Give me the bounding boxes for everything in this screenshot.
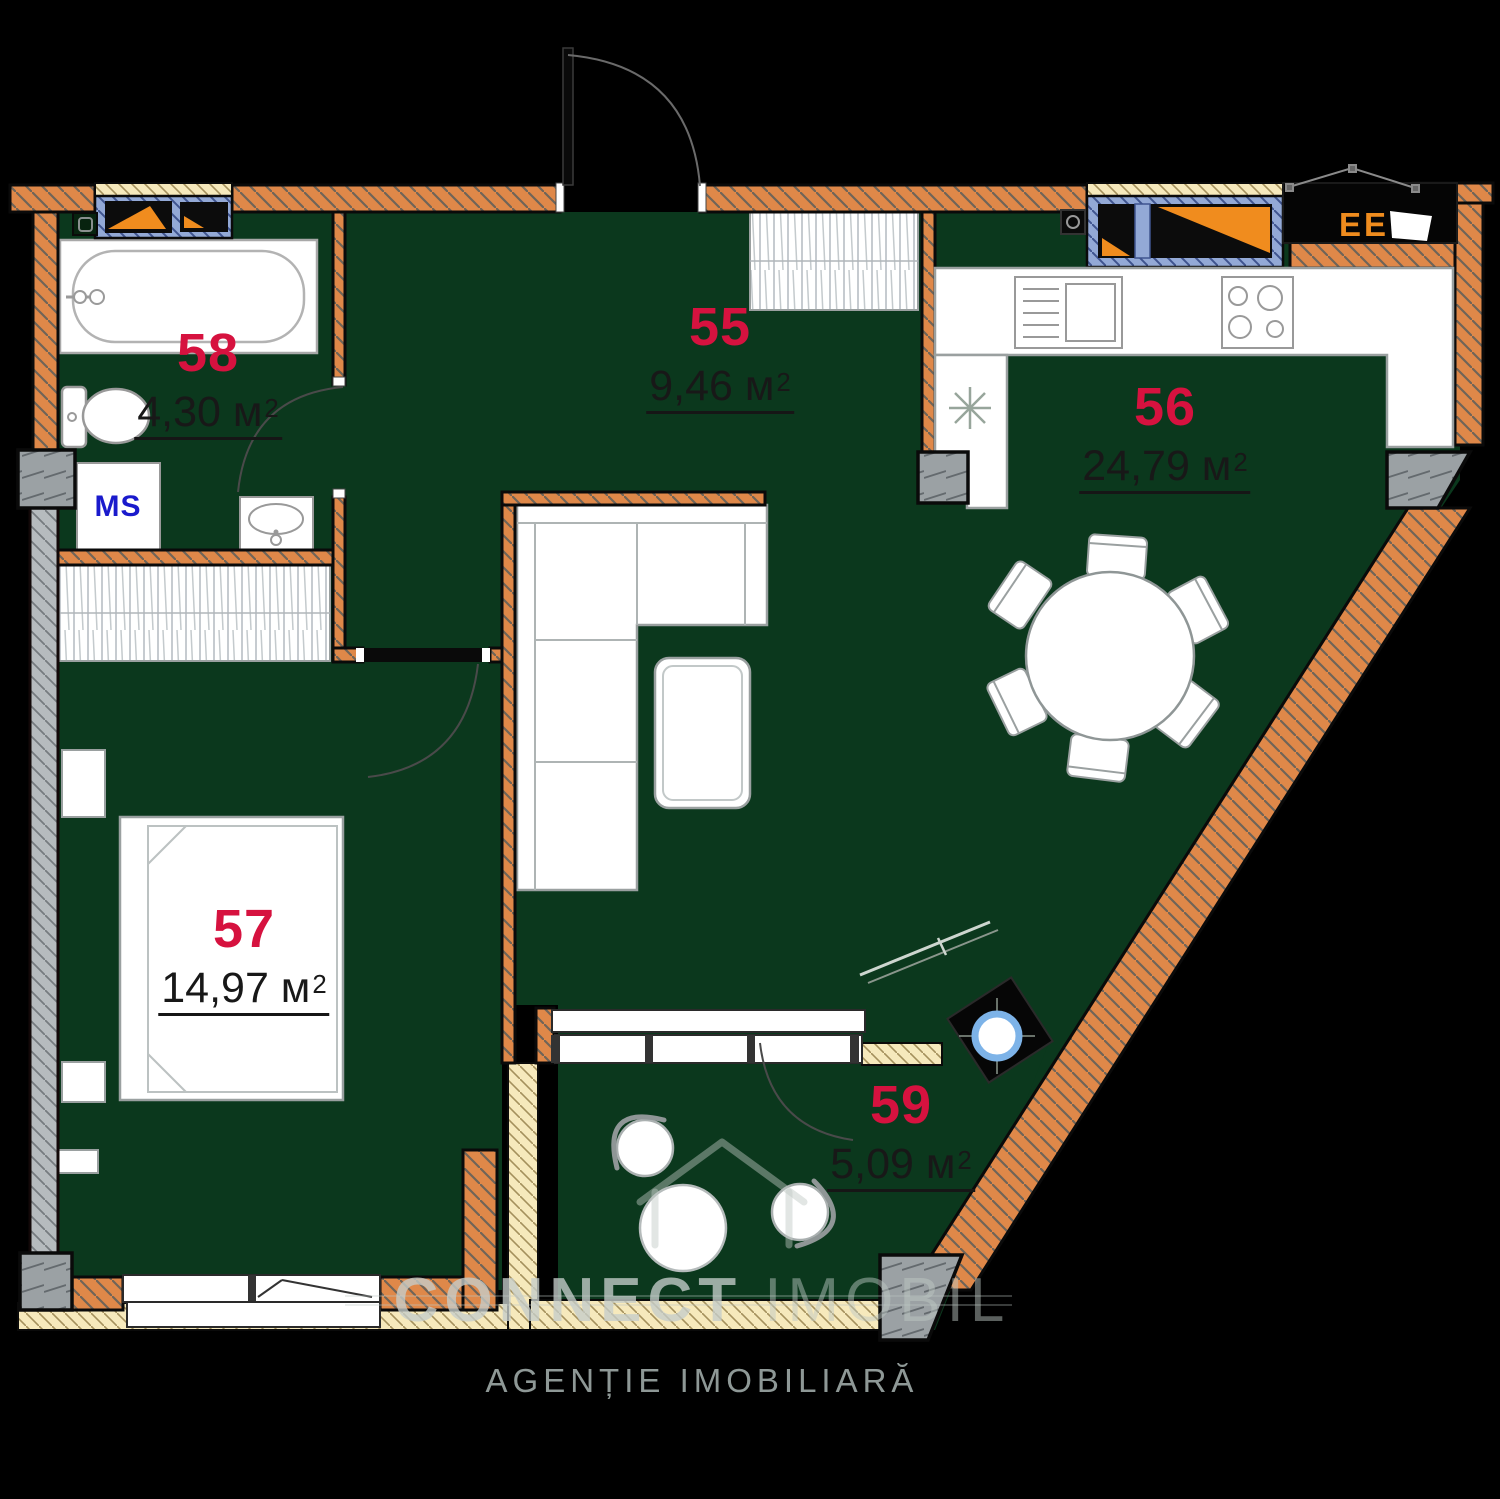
wall-bath-east-a	[333, 212, 345, 385]
dining-table-icon	[1026, 572, 1194, 740]
room-55-area: 9,46 м2	[646, 365, 794, 414]
coffee-table-icon	[655, 658, 750, 808]
wall-west-structural	[30, 508, 58, 1253]
floorplan-canvas: 55 9,46 м2 56 24,79 м2 57 14,97 м2 58 4,…	[0, 0, 1500, 1499]
round-sink-icon	[975, 1014, 1019, 1058]
wall-bath-west	[33, 212, 58, 452]
watermark-brand-secondary: IMOBIL	[764, 1270, 1010, 1332]
wall-bath-south	[58, 550, 345, 565]
watermark-brand-primary: CONNECT	[394, 1270, 743, 1332]
entrance-door	[556, 48, 706, 212]
wall-top-a	[232, 185, 560, 212]
wall-bath-east-b	[333, 497, 345, 648]
entrance-door-leaf	[563, 48, 573, 185]
room-57-area: 14,97 м2	[158, 967, 329, 1016]
column	[918, 452, 968, 503]
window-sill	[127, 1302, 380, 1327]
nightstand-icon	[62, 1062, 105, 1102]
room-56-area: 24,79 м2	[1079, 445, 1250, 494]
wall-top-left	[10, 185, 95, 212]
ee-label: EE	[1339, 206, 1389, 244]
stove-icon	[1222, 277, 1293, 348]
room-57-label: 57 14,97 м2	[158, 902, 329, 1016]
kitchen-window	[1087, 183, 1283, 267]
column	[18, 450, 75, 508]
wall-kitchen-partition	[922, 212, 935, 452]
room-59-label: 59 5,09 м2	[827, 1078, 975, 1192]
room-56-label: 56 24,79 м2	[1079, 380, 1250, 494]
watermark-brand: CONNECT IMOBIL	[394, 1270, 1011, 1332]
wall-below-ee	[1290, 240, 1457, 268]
bedroom-door-leaf	[363, 648, 483, 662]
wall-living-north	[502, 492, 765, 505]
watermark-tagline: AGENȚIE IMOBILIARĂ	[486, 1362, 919, 1400]
washbasin-icon	[240, 497, 313, 552]
dresser-icon	[58, 1150, 98, 1173]
room-58-label: 58 4,30 м2	[134, 326, 282, 440]
wall-east	[1455, 203, 1483, 445]
room-57-number: 57	[158, 902, 329, 956]
ee-white-flag	[1390, 211, 1432, 241]
room-58-area: 4,30 м2	[134, 391, 282, 440]
kitchen-sink-icon	[1015, 277, 1122, 348]
room-55-label: 55 9,46 м2	[646, 300, 794, 414]
ms-label: MS	[95, 490, 142, 524]
column	[20, 1253, 72, 1310]
nightstand-icon	[62, 750, 105, 817]
wall-bedroom-east	[502, 492, 515, 1063]
wall-bed-door-stub-r	[490, 648, 502, 662]
entrance-door-arc	[568, 55, 700, 186]
appliance-asterisk-icon	[949, 387, 991, 429]
balcony-ne-glazing	[862, 1043, 942, 1065]
room-59-number: 59	[827, 1078, 975, 1132]
wall-top-b	[700, 185, 1087, 212]
room-55-number: 55	[646, 300, 794, 354]
room-59-area: 5,09 м2	[827, 1143, 975, 1192]
bedroom-window	[123, 1275, 380, 1327]
room-56-number: 56	[1079, 380, 1250, 434]
bathroom-window	[95, 183, 232, 238]
room-58-number: 58	[134, 326, 282, 380]
